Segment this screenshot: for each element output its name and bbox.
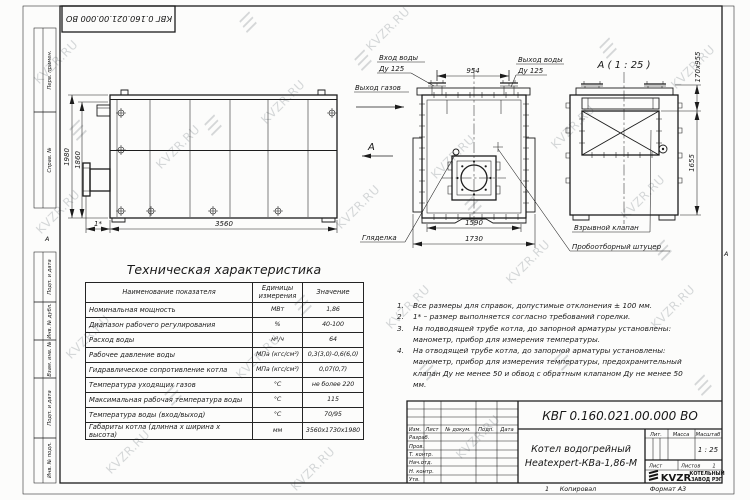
spec-name: Номинальная мощность xyxy=(86,303,253,318)
note-item: 3. На подводящей трубе котла, до запорно… xyxy=(397,323,695,346)
signature-row-label: Н. контр. xyxy=(409,469,434,475)
spec-unit: МВт xyxy=(253,303,303,318)
spec-name: Расход воды xyxy=(86,333,253,348)
spec-unit: мм xyxy=(253,423,303,440)
strip-label: Инв. № подл. xyxy=(47,442,53,478)
note-number: 2. xyxy=(397,311,413,322)
spec-name: Максимальная рабочая температура воды xyxy=(86,393,253,408)
spec-value: 70/95 xyxy=(303,408,364,423)
product-name-line1: Котел водогрейный xyxy=(531,444,631,455)
strip-label: Подп. и дата xyxy=(47,390,53,425)
water-outlet-label: Выход воды xyxy=(518,56,563,64)
water-inlet-label: Вход воды xyxy=(379,54,419,62)
lit-header: Лит. xyxy=(649,432,662,438)
spec-unit: °С xyxy=(253,378,303,393)
note-text: На подводящей трубе котла, до запорной а… xyxy=(413,323,695,346)
col-header-name: Наименование показателя xyxy=(86,283,253,303)
zone-marker-left: А xyxy=(44,235,49,243)
spec-row: Рабочее давление водыМПа (кгс/см²)0,3(3,… xyxy=(86,348,364,363)
note-number: 3. xyxy=(397,323,413,346)
sheets-label: Листов xyxy=(680,464,700,470)
rear-view: А ( 1 : 25 ) 170х955 1655 xyxy=(566,51,702,224)
kvzr-logo-icon xyxy=(649,471,658,480)
spec-unit: °С xyxy=(253,408,303,423)
note-text: Все размеры для справок, допустимые откл… xyxy=(413,300,695,311)
spec-unit: м³/ч xyxy=(253,333,303,348)
scale-value: 1 : 25 xyxy=(698,446,719,454)
note-text: На отводящей трубе котла, до запорной ар… xyxy=(413,345,695,390)
note-number: 1. xyxy=(397,300,413,311)
rev-col-header: Изм. xyxy=(409,427,421,433)
spec-unit: % xyxy=(253,318,303,333)
tech-spec-title: Техническая характеристика xyxy=(85,262,363,277)
water-inlet-dn-label: Ду 125 xyxy=(378,65,405,73)
side-inner-height-dim: 1860 xyxy=(74,151,82,169)
spec-row: Температура воды (вход/выход)°С70/95 xyxy=(86,408,364,423)
front-outer-width-dim: 1730 xyxy=(465,235,483,243)
spec-unit: МПа (кгс/см²) xyxy=(253,348,303,363)
spec-name: Диапазон рабочего регулирования xyxy=(86,318,253,333)
sight-glass-label: Гляделка xyxy=(362,234,397,242)
front-view: 954 1590 1730 Вход воды Ду 125 Выход вод… xyxy=(354,54,670,251)
side-height-dim: 1980 xyxy=(63,148,71,166)
spec-value: 0,07(0,7) xyxy=(303,363,364,378)
side-view: 1980 1860 3560 1* xyxy=(63,90,337,233)
sheet-label: Лист xyxy=(648,464,663,470)
copy-number: 1 xyxy=(545,485,549,493)
spec-row: Расход водым³/ч64 xyxy=(86,333,364,348)
signature-row-label: Разраб. xyxy=(409,435,429,441)
rear-view-title: А ( 1 : 25 ) xyxy=(597,60,651,71)
mass-header: Масса xyxy=(673,432,690,438)
explosion-valve-label: Взрывной клапан xyxy=(574,224,639,232)
spec-value: 1,86 xyxy=(303,303,364,318)
note-item: 1. Все размеры для справок, допустимые о… xyxy=(397,300,695,311)
spec-row: Максимальная рабочая температура воды°С1… xyxy=(86,393,364,408)
rev-col-header: Лист xyxy=(424,427,439,433)
note-number: 4. xyxy=(397,345,413,390)
spec-name: Температура уходящих газов xyxy=(86,378,253,393)
spec-value: 0,3(3,0)-0,6(6,0) xyxy=(303,348,364,363)
note-item: 4. На отводящей трубе котла, до запорной… xyxy=(397,345,695,390)
logo-text: KVZR xyxy=(661,473,692,484)
format-label: Формат А3 xyxy=(650,485,686,493)
notes-section: 1. Все размеры для справок, допустимые о… xyxy=(397,300,695,390)
signature-row-label: Пров. xyxy=(409,444,424,450)
col-header-units: Единицы измерения xyxy=(253,283,303,303)
strip-label: Подп. и дата xyxy=(47,259,53,294)
spec-name: Гидравлическое сопротивление котла xyxy=(86,363,253,378)
spec-value: 40-100 xyxy=(303,318,364,333)
logo-subtext-2: ЗАВОД РЭП xyxy=(691,477,723,483)
note-item: 2. 1* – размер выполняется согласно треб… xyxy=(397,311,695,322)
front-inner-width-dim: 1590 xyxy=(465,219,483,227)
signature-row-label: Утв. xyxy=(409,477,420,483)
drawing-sheet: KVZR.RU KVZR.RU KVZR.RU KVZR.RU KVZR.RU … xyxy=(0,0,750,500)
spec-unit: МПа (кгс/см²) xyxy=(253,363,303,378)
nozzle-span-dim: 954 xyxy=(466,67,479,75)
tech-spec-section: Техническая характеристика Наименование … xyxy=(85,262,363,440)
sheets-value: 1 xyxy=(712,464,715,470)
copied-label: Копировал xyxy=(560,485,597,493)
spec-row: Габариты котла (длинна х ширина х высота… xyxy=(86,423,364,440)
spec-value: 3560х1730х1980 xyxy=(303,423,364,440)
strip-label: Инв. № дубл. xyxy=(47,303,53,339)
spec-row: Номинальная мощностьМВт1,86 xyxy=(86,303,364,318)
note-text: 1* – размер выполняется согласно требова… xyxy=(413,311,695,322)
spec-value: не более 220 xyxy=(303,378,364,393)
spec-unit: °С xyxy=(253,393,303,408)
gas-outlet-label: Выход газов xyxy=(355,84,401,92)
spec-row: Гидравлическое сопротивление котлаМПа (к… xyxy=(86,363,364,378)
spec-name: Габариты котла (длинна х ширина х высота… xyxy=(86,423,253,440)
signature-row-label: Т. контр. xyxy=(409,452,433,458)
scale-header: Масштаб xyxy=(696,432,721,438)
sampling-fitting-label: Пробоотборный штуцер xyxy=(572,243,662,251)
spec-value: 64 xyxy=(303,333,364,348)
col-header-value: Значение xyxy=(303,283,364,303)
burner-offset-dim: 1* xyxy=(94,220,102,228)
view-a-label: А xyxy=(367,142,375,153)
water-outlet-dn-label: Ду 125 xyxy=(517,67,544,75)
strip-label: Перв. примен. xyxy=(47,51,53,90)
doc-number: КВГ 0.160.021.00.000 ВО xyxy=(542,409,698,423)
spec-row: Диапазон рабочего регулирования%40-100 xyxy=(86,318,364,333)
rev-col-header: Подп. xyxy=(478,427,494,433)
rev-col-header: Дата xyxy=(499,427,513,433)
strip-label: Взам. инв. № xyxy=(47,341,53,376)
title-block: Изм. Лист № докум. Подп. Дата Разраб. Пр… xyxy=(407,401,725,493)
spec-row: Температура уходящих газов°Сне более 220 xyxy=(86,378,364,393)
tech-spec-table: Наименование показателя Единицы измерени… xyxy=(85,282,364,440)
product-name-line2: Heatexpert-КВа-1,86-М xyxy=(525,458,637,469)
spec-name: Рабочее давление воды xyxy=(86,348,253,363)
rev-col-header: № докум. xyxy=(444,427,471,433)
top-stamp-text: КВГ 0.160.021.00.000 ВО xyxy=(65,14,172,24)
gas-duct-dim: 170х955 xyxy=(694,51,702,82)
rear-height-dim: 1655 xyxy=(688,154,696,172)
spec-name: Температура воды (вход/выход) xyxy=(86,408,253,423)
side-length-dim: 3560 xyxy=(215,220,233,228)
spec-value: 115 xyxy=(303,393,364,408)
zone-marker-right: А xyxy=(723,250,728,258)
signature-row-label: Нач.отд. xyxy=(409,460,432,466)
spec-header-row: Наименование показателя Единицы измерени… xyxy=(86,283,364,303)
strip-label: Справ. № xyxy=(47,147,53,172)
